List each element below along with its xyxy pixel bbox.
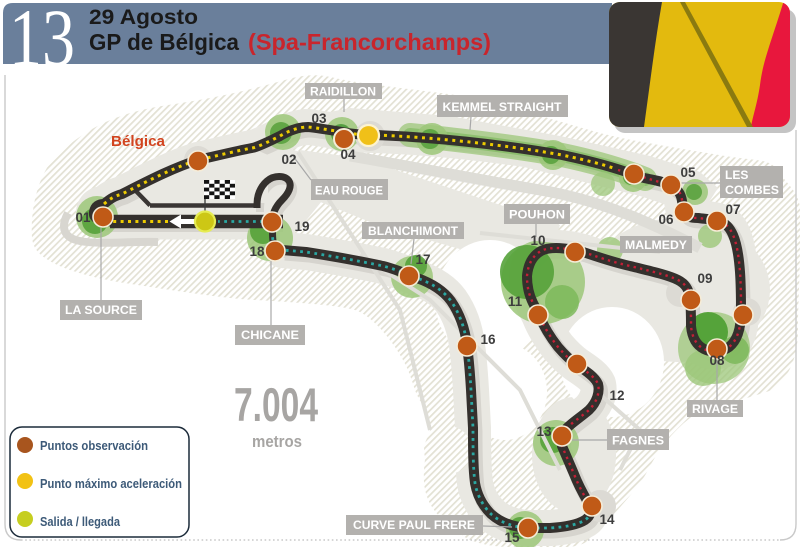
svg-text:(Spa-Francorchamps): (Spa-Francorchamps) bbox=[248, 29, 491, 55]
svg-text:19: 19 bbox=[294, 219, 309, 234]
svg-text:06: 06 bbox=[658, 212, 674, 227]
svg-text:08: 08 bbox=[709, 353, 725, 368]
svg-text:LES: LES bbox=[725, 168, 748, 182]
svg-text:Punto máximo aceleración: Punto máximo aceleración bbox=[40, 476, 182, 491]
svg-text:04: 04 bbox=[340, 147, 356, 162]
svg-text:18: 18 bbox=[249, 244, 265, 259]
svg-text:FAGNES: FAGNES bbox=[612, 434, 664, 448]
svg-text:29 Agosto: 29 Agosto bbox=[89, 6, 198, 29]
svg-text:POUHON: POUHON bbox=[509, 208, 565, 222]
svg-text:05: 05 bbox=[680, 165, 696, 180]
svg-text:metros: metros bbox=[252, 432, 302, 451]
svg-text:12: 12 bbox=[609, 388, 624, 403]
svg-text:7.004: 7.004 bbox=[234, 378, 318, 431]
svg-text:03: 03 bbox=[311, 111, 327, 126]
svg-text:KEMMEL STRAIGHT: KEMMEL STRAIGHT bbox=[443, 100, 563, 114]
svg-text:07: 07 bbox=[725, 202, 740, 217]
svg-text:BLANCHIMONT: BLANCHIMONT bbox=[368, 224, 459, 238]
svg-text:Puntos observación: Puntos observación bbox=[40, 438, 148, 453]
svg-text:Bélgica: Bélgica bbox=[111, 133, 166, 150]
svg-text:COMBES: COMBES bbox=[725, 183, 779, 197]
svg-text:09: 09 bbox=[697, 271, 712, 286]
svg-text:MALMEDY: MALMEDY bbox=[625, 238, 687, 252]
svg-text:CHICANE: CHICANE bbox=[241, 328, 299, 342]
svg-text:17: 17 bbox=[415, 252, 430, 267]
svg-text:EAU ROUGE: EAU ROUGE bbox=[315, 184, 383, 198]
svg-text:13: 13 bbox=[9, 0, 75, 83]
svg-text:14: 14 bbox=[599, 512, 615, 527]
svg-text:10: 10 bbox=[530, 233, 545, 248]
svg-text:01: 01 bbox=[75, 210, 91, 225]
svg-text:02: 02 bbox=[281, 152, 296, 167]
svg-text:RIVAGE: RIVAGE bbox=[692, 402, 738, 416]
svg-text:11: 11 bbox=[508, 294, 523, 309]
svg-text:13: 13 bbox=[536, 424, 552, 439]
svg-text:16: 16 bbox=[480, 332, 496, 347]
svg-text:GP de Bélgica: GP de Bélgica bbox=[89, 29, 239, 55]
svg-text:LA SOURCE: LA SOURCE bbox=[65, 303, 137, 317]
svg-text:Salida / llegada: Salida / llegada bbox=[40, 514, 121, 529]
svg-text:15: 15 bbox=[504, 530, 520, 545]
svg-text:CURVE PAUL FRERE: CURVE PAUL FRERE bbox=[353, 518, 475, 532]
svg-text:RAIDILLON: RAIDILLON bbox=[310, 85, 376, 99]
